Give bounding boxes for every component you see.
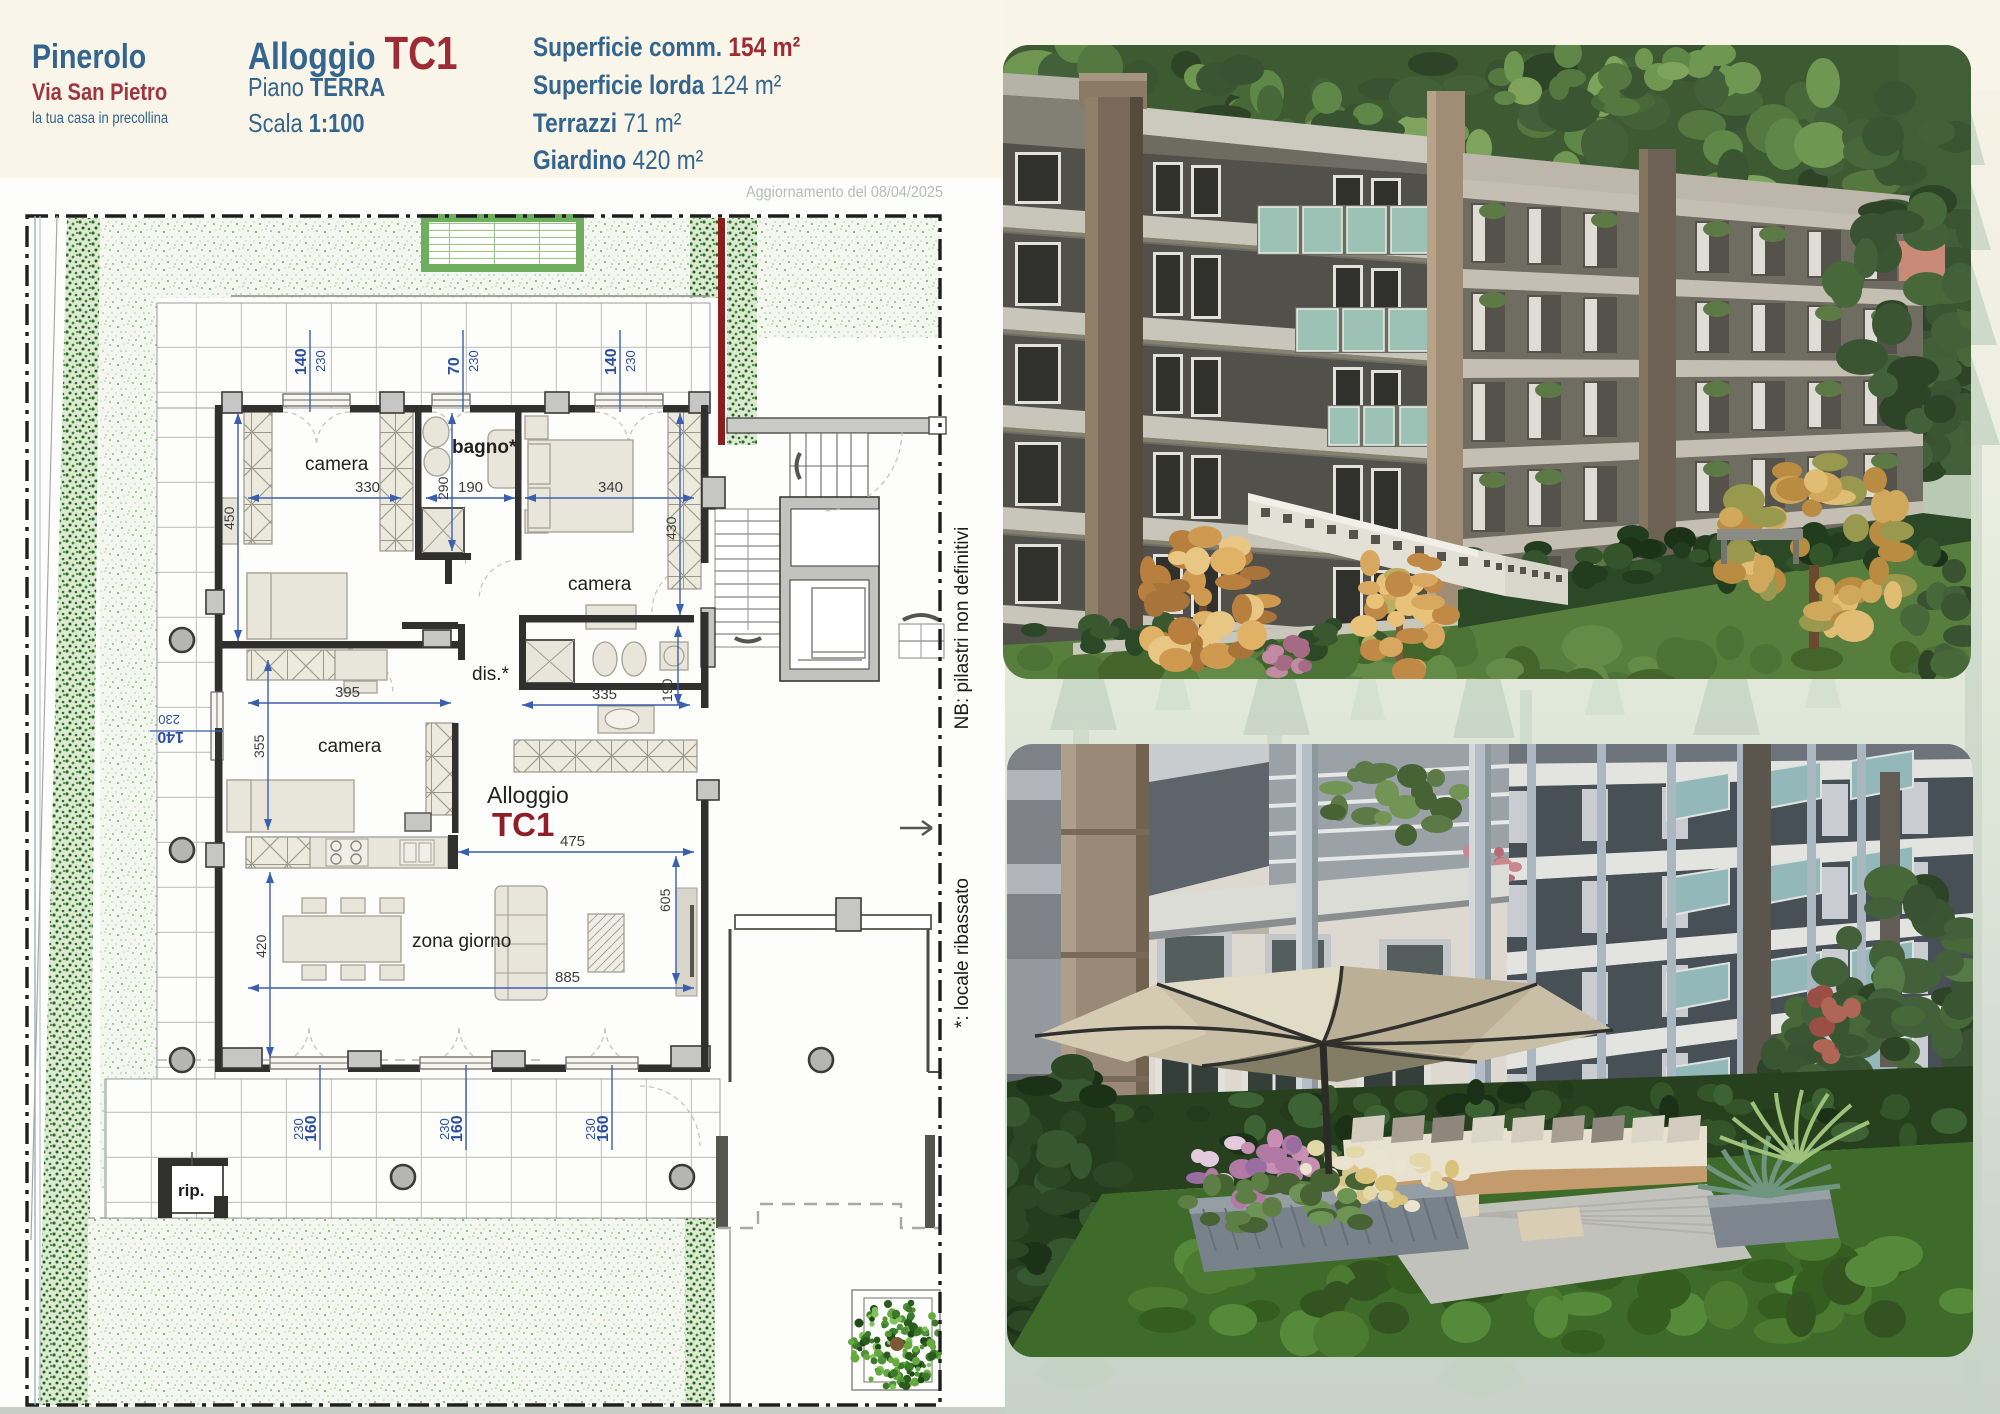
svg-text:330: 330 bbox=[355, 479, 380, 496]
svg-text:140: 140 bbox=[157, 728, 184, 745]
svg-text:dis.*: dis.* bbox=[472, 664, 510, 685]
svg-text:290: 290 bbox=[435, 476, 451, 500]
svg-text:230: 230 bbox=[583, 1118, 598, 1140]
svg-text:430: 430 bbox=[663, 516, 679, 540]
svg-text:70: 70 bbox=[446, 357, 463, 375]
svg-text:rip.: rip. bbox=[178, 1181, 204, 1200]
svg-text:420: 420 bbox=[253, 934, 269, 958]
svg-text:190: 190 bbox=[458, 479, 483, 496]
svg-text:TC1: TC1 bbox=[492, 806, 554, 843]
svg-text:605: 605 bbox=[657, 888, 673, 912]
svg-text:230: 230 bbox=[313, 350, 328, 372]
svg-text:bagno*: bagno* bbox=[452, 437, 517, 458]
svg-text:230: 230 bbox=[437, 1118, 452, 1140]
svg-text:camera: camera bbox=[318, 736, 382, 757]
svg-text:230: 230 bbox=[291, 1118, 306, 1140]
svg-text:230: 230 bbox=[158, 712, 180, 727]
svg-text:140: 140 bbox=[603, 348, 620, 375]
svg-text:885: 885 bbox=[555, 969, 580, 986]
svg-text:230: 230 bbox=[466, 350, 481, 372]
svg-text:camera: camera bbox=[568, 574, 632, 595]
svg-text:230: 230 bbox=[623, 350, 638, 372]
svg-text:190: 190 bbox=[659, 678, 675, 702]
svg-text:475: 475 bbox=[560, 833, 585, 850]
svg-text:Alloggio: Alloggio bbox=[487, 782, 569, 808]
svg-text:camera: camera bbox=[305, 454, 369, 475]
svg-text:450: 450 bbox=[221, 506, 237, 530]
svg-text:140: 140 bbox=[293, 348, 310, 375]
svg-text:340: 340 bbox=[598, 479, 623, 496]
svg-text:355: 355 bbox=[251, 734, 267, 758]
svg-text:335: 335 bbox=[592, 686, 617, 703]
svg-text:zona giorno: zona giorno bbox=[412, 931, 511, 952]
svg-text:395: 395 bbox=[335, 684, 360, 701]
